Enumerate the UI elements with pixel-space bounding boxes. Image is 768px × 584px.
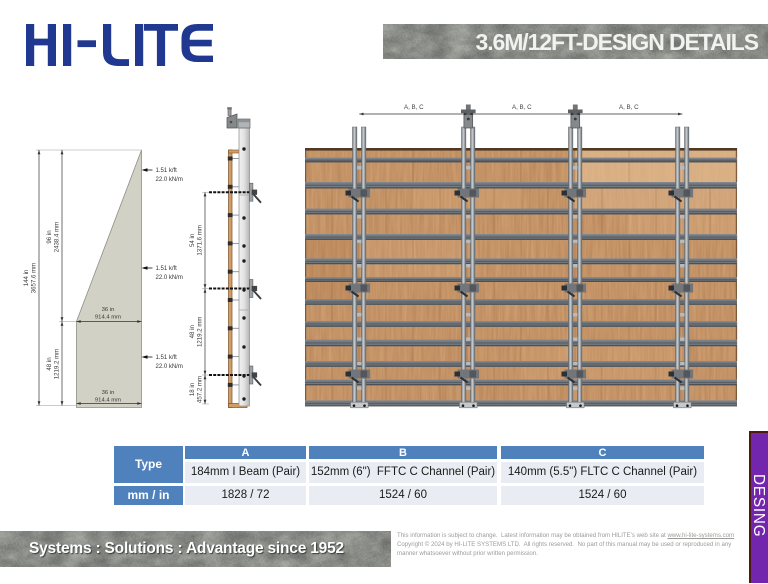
svg-text:22.0 kN/m: 22.0 kN/m: [156, 275, 183, 281]
svg-text:1.51 k/ft: 1.51 k/ft: [156, 168, 178, 174]
svg-text:A, B, C: A, B, C: [619, 104, 639, 111]
svg-text:914.4 mm: 914.4 mm: [95, 398, 121, 404]
svg-text:36 in: 36 in: [102, 307, 115, 313]
svg-text:144 in: 144 in: [23, 270, 30, 287]
svg-text:96 in: 96 in: [46, 230, 53, 243]
svg-text:1.51 k/ft: 1.51 k/ft: [156, 266, 178, 272]
svg-text:22.0 kN/m: 22.0 kN/m: [156, 364, 183, 370]
svg-text:2438.4 mm: 2438.4 mm: [54, 222, 61, 252]
svg-text:A, B, C: A, B, C: [512, 104, 532, 111]
svg-text:1219.2 mm: 1219.2 mm: [197, 317, 204, 347]
svg-text:22.0 kN/m: 22.0 kN/m: [156, 177, 183, 183]
svg-text:1.51 k/ft: 1.51 k/ft: [156, 355, 178, 361]
svg-text:3657.6 mm: 3657.6 mm: [31, 263, 38, 293]
svg-text:457.2 mm: 457.2 mm: [197, 376, 204, 403]
svg-text:1219.2 mm: 1219.2 mm: [54, 349, 61, 379]
svg-text:1371.6 mm: 1371.6 mm: [197, 225, 204, 255]
svg-text:54 in: 54 in: [189, 234, 196, 247]
svg-text:914.4 mm: 914.4 mm: [95, 315, 121, 321]
svg-text:A, B, C: A, B, C: [404, 104, 424, 111]
svg-text:48 in: 48 in: [189, 325, 196, 338]
svg-text:36 in: 36 in: [102, 390, 115, 396]
svg-text:18 in: 18 in: [189, 383, 196, 396]
svg-text:48 in: 48 in: [46, 357, 53, 370]
